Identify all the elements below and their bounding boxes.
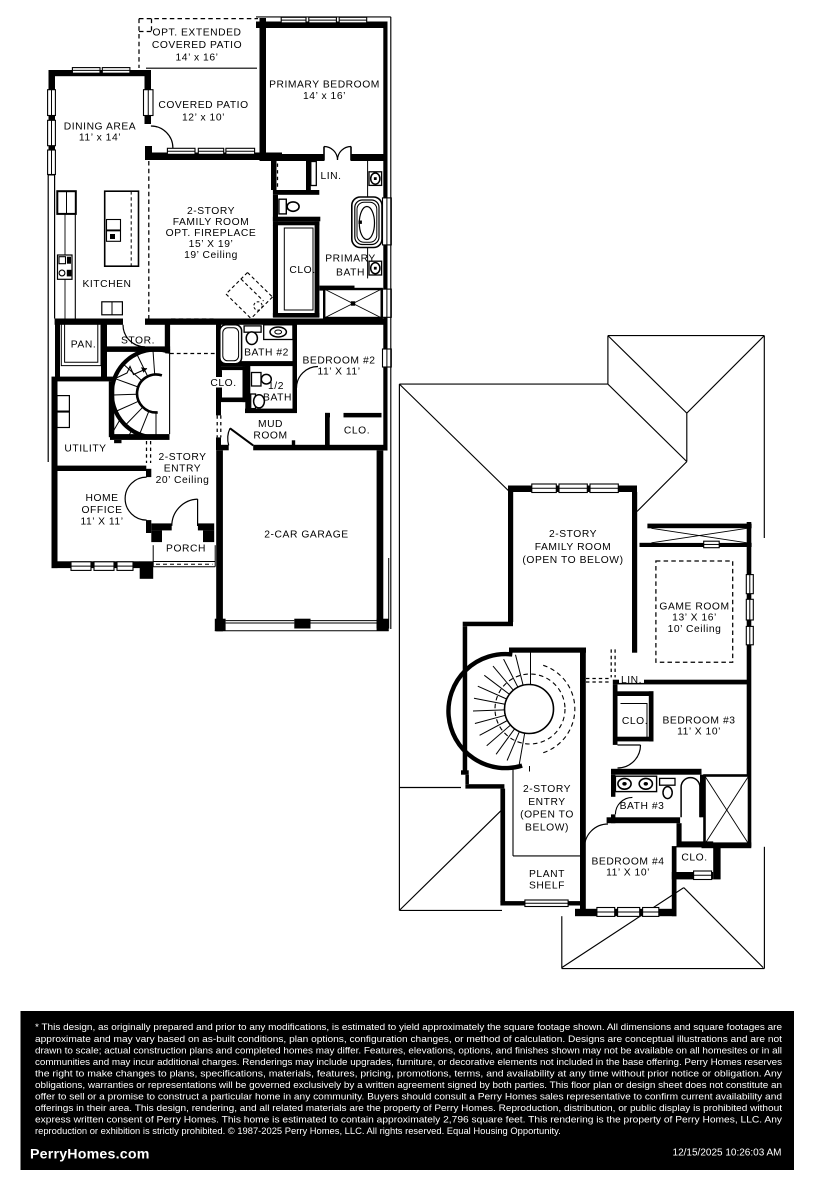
svg-text:LIN.: LIN. — [621, 675, 642, 686]
svg-text:LIN.: LIN. — [320, 171, 341, 182]
svg-text:1/2: 1/2 — [268, 381, 284, 392]
svg-text:ROOM: ROOM — [253, 431, 287, 442]
svg-text:PLANT: PLANT — [529, 869, 565, 880]
svg-text:drawn to scale; actual constru: drawn to scale; actual construction plan… — [35, 1044, 782, 1055]
svg-text:13’ X 16’: 13’ X 16’ — [672, 613, 717, 624]
svg-text:11’ X 10’: 11’ X 10’ — [677, 727, 721, 738]
svg-text:UTILITY: UTILITY — [64, 443, 106, 454]
svg-text:11’ x 14’: 11’ x 14’ — [79, 132, 121, 143]
svg-text:COVERED PATIO: COVERED PATIO — [152, 40, 242, 51]
svg-text:BELOW): BELOW) — [525, 823, 569, 834]
svg-text:BEDROOM #4: BEDROOM #4 — [591, 856, 664, 867]
svg-text:2-STORY: 2-STORY — [158, 452, 206, 463]
svg-text:GAME ROOM: GAME ROOM — [659, 601, 729, 612]
svg-text:11’ X 11’: 11’ X 11’ — [317, 367, 360, 378]
svg-text:19’ Ceiling: 19’ Ceiling — [184, 250, 238, 261]
svg-text:SHELF: SHELF — [529, 880, 565, 891]
svg-text:BATH: BATH — [336, 267, 365, 278]
svg-text:STOR.: STOR. — [121, 336, 155, 347]
svg-text:CLO.: CLO. — [681, 853, 707, 864]
svg-text:offer to sell or a promise t: offer to sell or a promise to construct … — [35, 1091, 782, 1102]
svg-text:ENTRY: ENTRY — [528, 797, 565, 808]
svg-text:communities and may incur addi: communities and may incur additional cha… — [35, 1056, 782, 1067]
svg-text:OFFICE: OFFICE — [81, 505, 122, 516]
svg-text:(OPEN TO BELOW): (OPEN TO BELOW) — [522, 555, 623, 566]
svg-text:KITCHEN: KITCHEN — [82, 279, 131, 290]
svg-text:MUD: MUD — [258, 419, 283, 430]
svg-text:PRIMARY BEDROOM: PRIMARY BEDROOM — [269, 79, 380, 90]
svg-text:14’ x 16’: 14’ x 16’ — [176, 52, 219, 63]
svg-text:11’ X 10’: 11’ X 10’ — [606, 868, 650, 879]
svg-text:2-STORY: 2-STORY — [187, 206, 235, 217]
svg-text:FAMILY ROOM: FAMILY ROOM — [535, 542, 612, 553]
svg-text:BATH: BATH — [263, 392, 292, 403]
svg-text:14’ x 16’: 14’ x 16’ — [303, 91, 346, 102]
svg-text:2-STORY: 2-STORY — [549, 529, 597, 540]
svg-text:approximate and may vary bas: approximate and may vary based on as-bui… — [35, 1033, 782, 1044]
svg-text:* This design, as originally p: * This design, as originally prepared an… — [35, 1021, 782, 1032]
svg-text:OPT. FIREPLACE: OPT. FIREPLACE — [166, 228, 257, 239]
svg-text:11’ X 11’: 11’ X 11’ — [80, 516, 123, 527]
svg-text:the right to make changes: the right to make changes to plans, spec… — [35, 1067, 782, 1078]
svg-text:ENTRY: ENTRY — [164, 464, 201, 475]
svg-text:2-CAR GARAGE: 2-CAR GARAGE — [264, 530, 348, 541]
svg-text:BATH #2: BATH #2 — [244, 347, 289, 358]
svg-text:COVERED PATIO: COVERED PATIO — [158, 100, 248, 111]
svg-text:reproduction or exhibition is: reproduction or exhibition is strictly p… — [35, 1125, 561, 1136]
svg-text:(OPEN TO: (OPEN TO — [520, 810, 574, 821]
svg-text:CLO.: CLO. — [289, 265, 315, 276]
svg-text:BATH #3: BATH #3 — [620, 801, 665, 812]
svg-text:DINING AREA: DINING AREA — [64, 122, 136, 133]
svg-text:PerryHomes.com: PerryHomes.com — [30, 1147, 150, 1163]
svg-text:express written consent of: express written consent of Perry Homes. … — [35, 1114, 782, 1125]
svg-text:PORCH: PORCH — [166, 543, 206, 554]
svg-text:12/15/2025 10:26:03 AM: 12/15/2025 10:26:03 AM — [673, 1148, 782, 1159]
svg-text:PRIMARY: PRIMARY — [325, 253, 376, 264]
svg-text:20’ Ceiling: 20’ Ceiling — [156, 475, 210, 486]
svg-text:CLO.: CLO. — [622, 716, 648, 727]
svg-text:BEDROOM #3: BEDROOM #3 — [662, 715, 735, 726]
svg-text:10’ Ceiling: 10’ Ceiling — [668, 624, 722, 635]
svg-text:HOME: HOME — [85, 493, 118, 504]
svg-text:12’ x 10’: 12’ x 10’ — [182, 112, 225, 123]
svg-text:BEDROOM #2: BEDROOM #2 — [302, 355, 375, 366]
svg-text:PAN.: PAN. — [71, 340, 96, 351]
svg-text:CLO.: CLO. — [210, 378, 236, 389]
svg-text:CLO.: CLO. — [344, 425, 370, 436]
svg-text:obligations, warranties or rep: obligations, warranties or representatio… — [35, 1079, 782, 1090]
svg-text:offerings in their area. Thi: offerings in their area. This design, re… — [35, 1102, 782, 1113]
svg-text:2-STORY: 2-STORY — [523, 784, 571, 795]
svg-text:15’ X 19’: 15’ X 19’ — [189, 239, 234, 250]
svg-text:OPT. EXTENDED: OPT. EXTENDED — [153, 28, 242, 39]
svg-text:FAMILY ROOM: FAMILY ROOM — [173, 217, 250, 228]
